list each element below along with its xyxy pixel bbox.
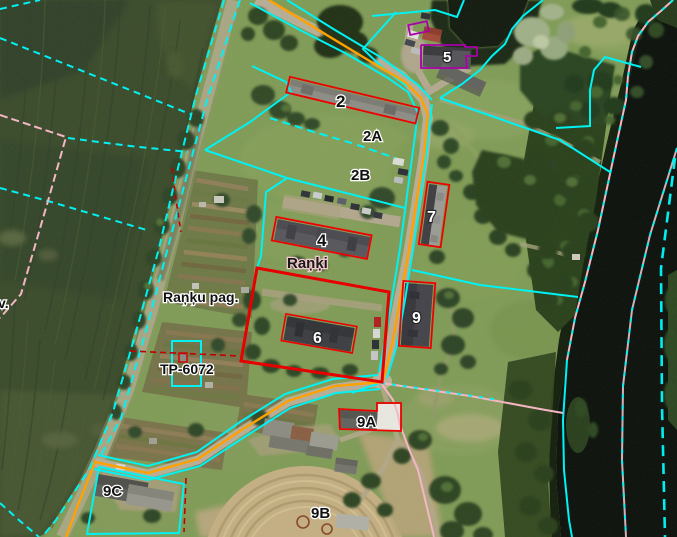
svg-text:2: 2 [336,92,345,111]
svg-text:4: 4 [317,231,327,250]
svg-text:2A: 2A [363,128,382,145]
svg-text:TP-6072: TP-6072 [160,361,214,377]
svg-text:7: 7 [427,209,436,226]
svg-text:9A: 9A [357,414,376,431]
svg-text:6: 6 [313,330,322,347]
svg-text:9C: 9C [103,483,122,500]
svg-text:Raņķu pag.: Raņķu pag. [163,289,238,305]
svg-text:Raņķi: Raņķi [287,255,328,272]
svg-text:v.: v. [0,295,9,311]
svg-text:9B: 9B [311,505,330,522]
svg-text:2B: 2B [351,167,370,184]
svg-text:9: 9 [412,310,421,327]
svg-text:5: 5 [443,49,451,66]
